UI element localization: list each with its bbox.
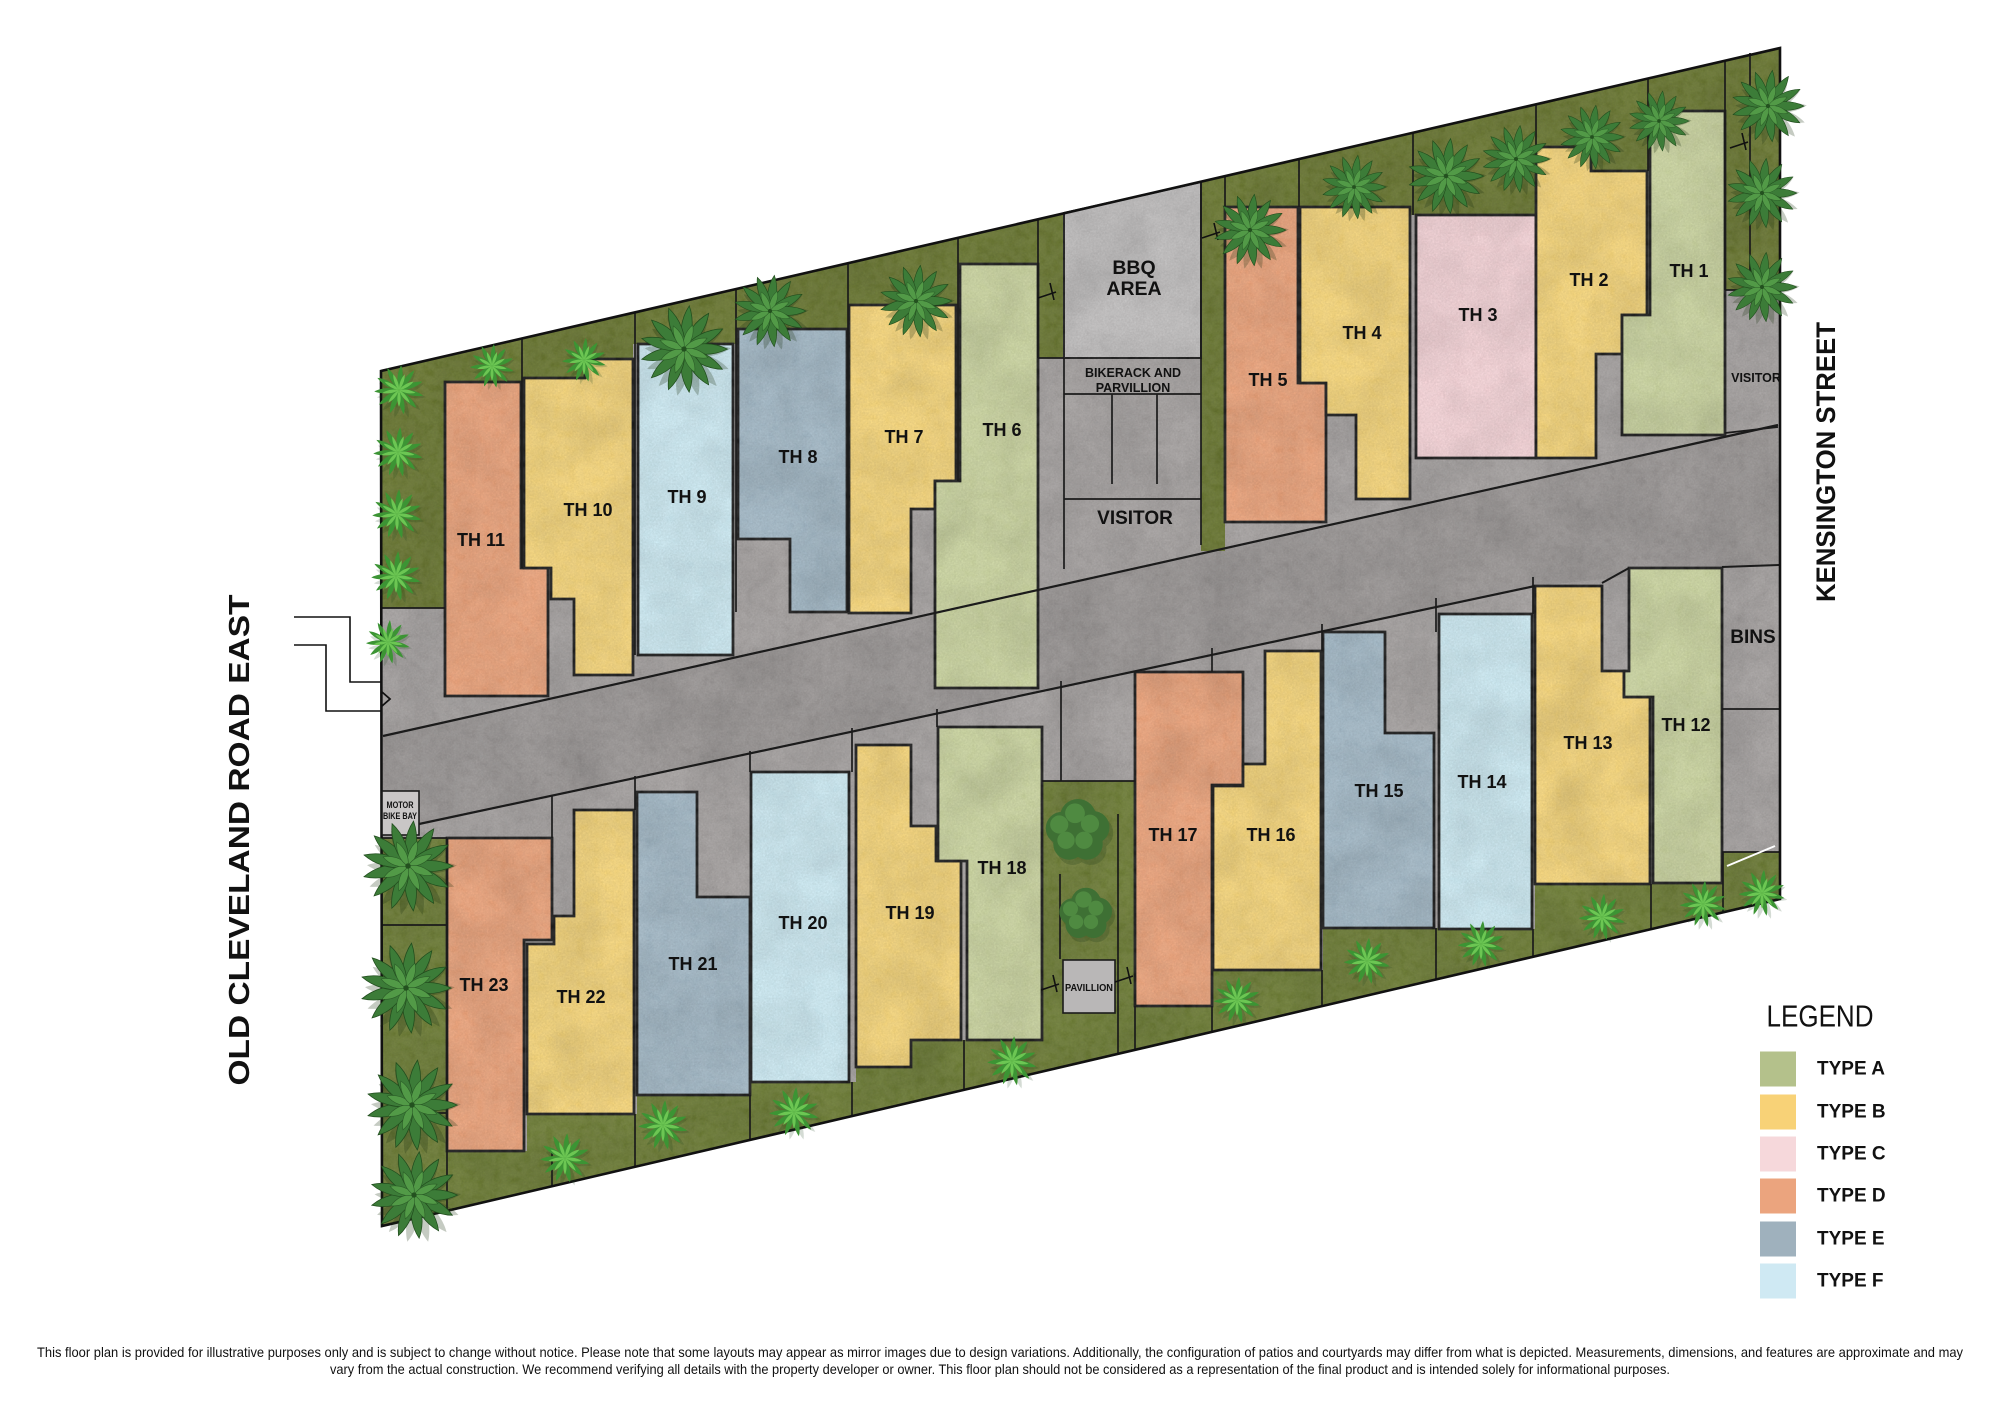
svg-text:TH 19: TH 19: [885, 903, 934, 923]
svg-text:BINS: BINS: [1730, 627, 1775, 648]
svg-text:TH 1: TH 1: [1669, 261, 1708, 281]
svg-text:TH 2: TH 2: [1569, 270, 1608, 290]
svg-text:TYPE E: TYPE E: [1817, 1229, 1885, 1250]
svg-text:TH 3: TH 3: [1458, 305, 1497, 325]
svg-text:PAVILLION: PAVILLION: [1065, 983, 1113, 994]
svg-text:TYPE B: TYPE B: [1817, 1102, 1886, 1123]
svg-text:vary from the actual construct: vary from the actual construction. We re…: [330, 1361, 1670, 1377]
svg-text:VISITOR: VISITOR: [1731, 371, 1781, 385]
svg-text:BBQ: BBQ: [1112, 257, 1155, 279]
svg-text:TH 6: TH 6: [982, 420, 1021, 440]
svg-text:TH 21: TH 21: [668, 954, 717, 974]
svg-text:TH 11: TH 11: [457, 530, 505, 550]
svg-text:TYPE C: TYPE C: [1817, 1144, 1886, 1165]
svg-text:TH 13: TH 13: [1563, 733, 1612, 753]
svg-text:MOTOR: MOTOR: [387, 800, 414, 810]
svg-text:TH 4: TH 4: [1342, 323, 1381, 343]
svg-text:AREA: AREA: [1106, 278, 1161, 300]
svg-text:TYPE F: TYPE F: [1817, 1271, 1884, 1292]
svg-text:TYPE A: TYPE A: [1817, 1059, 1885, 1080]
svg-text:TH 14: TH 14: [1457, 772, 1506, 792]
svg-text:TH 5: TH 5: [1248, 370, 1287, 390]
svg-text:TH 16: TH 16: [1246, 825, 1295, 845]
svg-text:TH 12: TH 12: [1661, 715, 1710, 735]
svg-text:TH 15: TH 15: [1354, 781, 1403, 801]
svg-text:BIKERACK AND: BIKERACK AND: [1085, 366, 1181, 380]
svg-text:TH 18: TH 18: [977, 858, 1026, 878]
svg-text:TH 22: TH 22: [556, 987, 605, 1007]
svg-text:PARVILLION: PARVILLION: [1096, 381, 1171, 395]
svg-text:BIKE BAY: BIKE BAY: [383, 811, 417, 821]
svg-text:TH 20: TH 20: [778, 913, 827, 933]
svg-text:VISITOR: VISITOR: [1097, 508, 1173, 529]
svg-text:LEGEND: LEGEND: [1767, 999, 1874, 1034]
svg-text:OLD CLEVELAND ROAD EAST: OLD CLEVELAND ROAD EAST: [224, 594, 256, 1085]
svg-text:KENSINGTON STREET: KENSINGTON STREET: [1811, 322, 1841, 602]
svg-text:TH 7: TH 7: [884, 427, 923, 447]
svg-text:TH 17: TH 17: [1148, 825, 1197, 845]
svg-text:TH 10: TH 10: [563, 500, 612, 520]
svg-text:This floor plan is provided fo: This floor plan is provided for illustra…: [37, 1344, 1963, 1360]
svg-text:TH 8: TH 8: [778, 447, 817, 467]
svg-text:TH 23: TH 23: [459, 975, 508, 995]
svg-text:TH 9: TH 9: [667, 487, 706, 507]
svg-text:TYPE D: TYPE D: [1817, 1186, 1886, 1207]
